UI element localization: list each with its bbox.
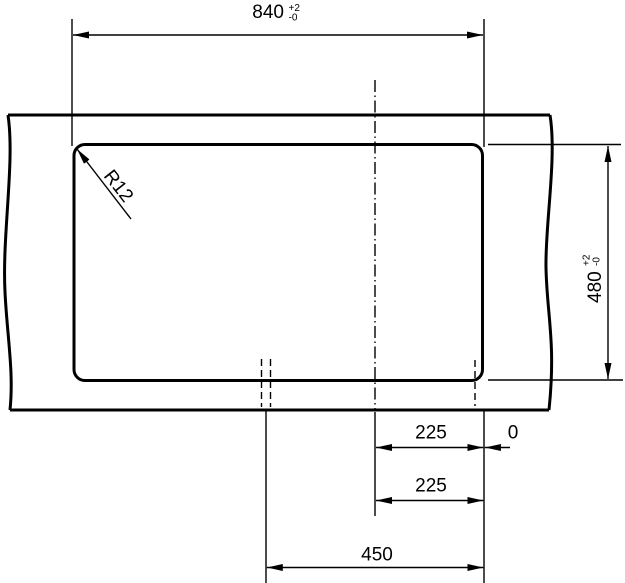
corner-radius-text-group: R12 [99,166,137,206]
technical-drawing-sheet: 840 +2 -0 480 +2 -0 R12 225 0 225 450 [0,0,625,583]
offset-center-dimension: 225 [415,476,447,497]
width-tolerance-lower: -0 [289,13,298,24]
corner-radius-label: R12 [99,166,137,206]
zero-reference-label: 0 [508,423,519,444]
span-total-dimension: 450 [361,545,393,566]
cutout-outline [74,145,483,381]
cutout-dimension-drawing: 840 +2 -0 480 +2 -0 R12 225 0 225 450 [0,0,625,583]
offset-right-dimension: 225 [415,423,447,444]
height-tolerance-lower: -0 [592,257,603,266]
worktop-right-break-line [546,115,552,410]
height-dimension-value: 480 [585,271,606,303]
width-dimension-value: 840 [252,2,284,23]
height-dimension-text-group: 480 +2 -0 [582,254,607,303]
worktop-left-break-line [5,115,12,410]
